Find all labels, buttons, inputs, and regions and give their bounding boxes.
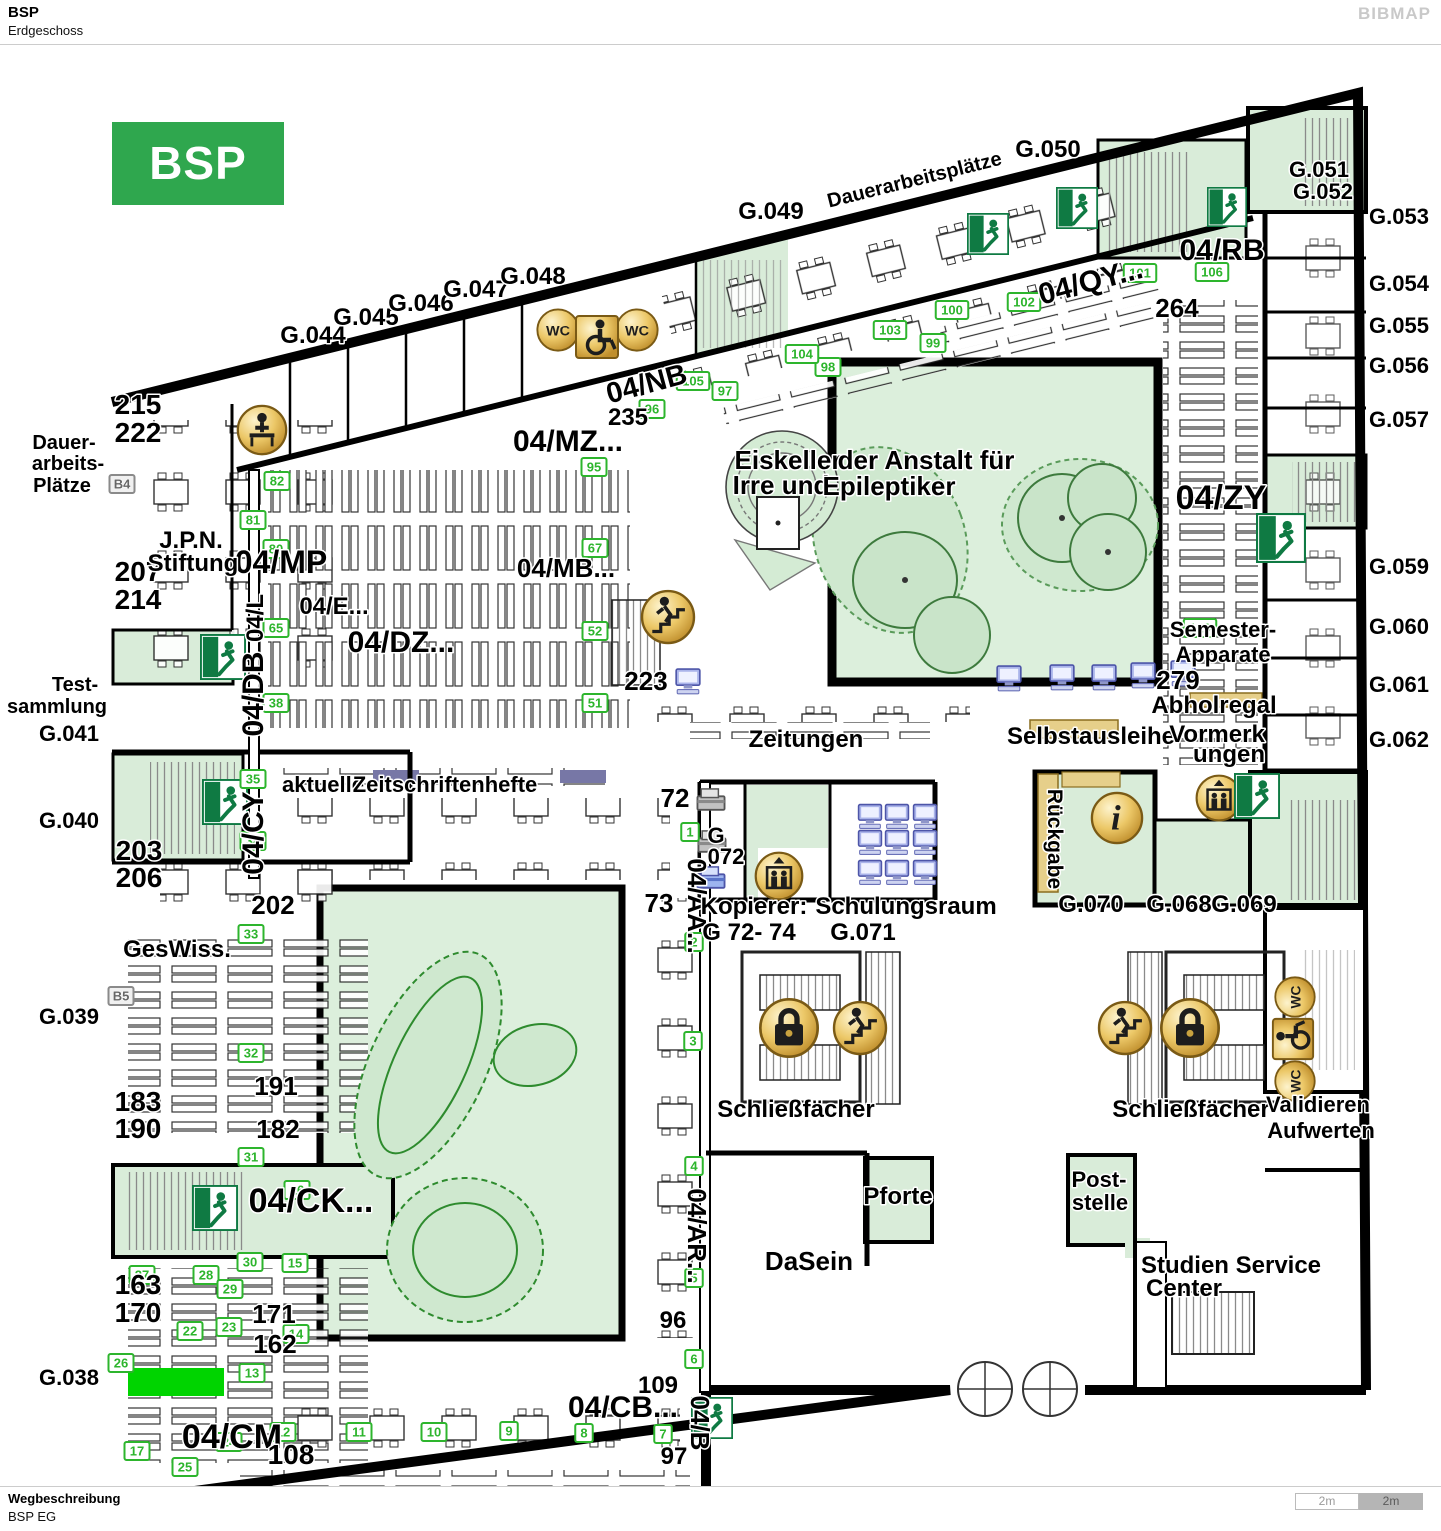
computer-icon — [886, 805, 909, 829]
map-label: Abholregal — [1151, 692, 1276, 719]
scale-segment-1: 2m — [1295, 1493, 1359, 1510]
svg-text:26: 26 — [114, 1356, 128, 1371]
map-label: 214 — [115, 584, 162, 615]
map-label: Apparate — [1175, 642, 1270, 667]
map-label: G.053 — [1369, 204, 1429, 229]
map-label: Zeitschriftenhefte — [353, 772, 538, 797]
map-label: G.050 — [1015, 136, 1080, 163]
map-label: G.054 — [1369, 271, 1430, 296]
exit-icon — [1208, 188, 1246, 226]
svg-text:51: 51 — [588, 696, 602, 711]
map-label: ungen — [1193, 741, 1265, 768]
section-marker: B5 — [109, 987, 134, 1005]
svg-text:9: 9 — [505, 1424, 512, 1439]
shelf-marker[interactable]: 51 — [583, 694, 608, 712]
computer-icon — [1092, 665, 1116, 690]
lock-icon — [760, 999, 817, 1056]
shelf-marker[interactable]: 28 — [194, 1266, 219, 1284]
svg-text:1: 1 — [686, 825, 693, 840]
map-label: aktuelle — [282, 772, 364, 797]
map-label: Dauer- — [32, 432, 95, 454]
map-label: Validieren — [1266, 1092, 1370, 1117]
map-label: 72 — [661, 783, 690, 813]
map-label: G.056 — [1369, 353, 1429, 378]
svg-text:102: 102 — [1013, 295, 1035, 310]
map-label: Schulungsraum — [815, 893, 996, 920]
computer-icon — [859, 805, 882, 829]
map-label: 222 — [115, 417, 162, 448]
map-label: 04/E... — [299, 593, 368, 620]
map-label: G.040 — [39, 808, 99, 833]
map-label: 279 — [1156, 665, 1199, 695]
map-label: 264 — [1155, 293, 1199, 323]
map-label: Post- — [1072, 1167, 1127, 1192]
svg-text:33: 33 — [244, 927, 258, 942]
computer-icon — [1131, 663, 1155, 688]
shelf-marker[interactable]: 26 — [109, 1354, 134, 1372]
svg-text:35: 35 — [246, 772, 260, 787]
map-label: G.038 — [39, 1365, 99, 1390]
computer-icon — [886, 861, 909, 885]
svg-text:29: 29 — [223, 1282, 237, 1297]
shelf-marker[interactable]: 32 — [239, 1044, 264, 1062]
map-label: 190 — [115, 1113, 162, 1144]
map-label: 04/L — [242, 594, 269, 642]
bibmap-logo: BIBMAP — [1358, 4, 1431, 24]
svg-text:8: 8 — [580, 1426, 587, 1441]
shelf-marker[interactable]: 22 — [178, 1322, 203, 1340]
stairs-icon — [1099, 1002, 1151, 1054]
map-label: G.069 — [1211, 891, 1276, 918]
map-label: G.061 — [1369, 672, 1429, 697]
map-label: 108 — [268, 1439, 315, 1470]
map-label: 04/MZ... — [513, 425, 623, 458]
footer: Wegbeschreibung BSP EG 2m2m — [0, 1486, 1441, 1531]
computer-icon — [859, 861, 882, 885]
svg-text:103: 103 — [879, 323, 901, 338]
map-label: stelle — [1072, 1190, 1128, 1215]
svg-text:52: 52 — [588, 624, 602, 639]
highlighted-shelf[interactable] — [128, 1368, 224, 1396]
directions-label: Wegbeschreibung — [8, 1491, 120, 1506]
shelf-marker[interactable]: 82 — [265, 472, 290, 490]
map-label: Plätze — [33, 475, 91, 497]
shelf-marker[interactable]: 11 — [347, 1423, 372, 1441]
map-label: 171 — [252, 1299, 295, 1329]
svg-text:100: 100 — [941, 303, 963, 318]
map-label: Stiftung — [148, 550, 239, 577]
shelf-marker[interactable]: 8 — [575, 1424, 593, 1442]
computer-icon — [914, 831, 937, 855]
svg-text:81: 81 — [246, 513, 260, 528]
map-label: 04/AR... — [682, 1188, 712, 1283]
map-label: G.041 — [39, 721, 99, 746]
map-label: sammlung — [7, 696, 107, 718]
page-title: BSP — [8, 4, 39, 21]
map-label: G.049 — [738, 198, 803, 225]
shelf-marker[interactable]: 1 — [681, 823, 699, 841]
svg-text:10: 10 — [427, 1425, 441, 1440]
shelf-marker[interactable]: 103 — [874, 321, 907, 339]
map-label: Semester- — [1170, 617, 1276, 642]
exit-icon — [1057, 188, 1097, 228]
shelf-marker[interactable]: 52 — [583, 622, 608, 640]
svg-text:97: 97 — [718, 384, 732, 399]
shelf-marker[interactable]: 33 — [239, 925, 264, 943]
svg-text:13: 13 — [245, 1366, 259, 1381]
scale-segment-2: 2m — [1359, 1493, 1423, 1510]
map-label: G.055 — [1369, 313, 1429, 338]
shelf-marker[interactable]: 13 — [240, 1364, 265, 1382]
map-label: G.060 — [1369, 614, 1429, 639]
svg-text:6: 6 — [690, 1352, 697, 1367]
computer-icon — [676, 669, 700, 694]
wc-icon — [1275, 977, 1314, 1016]
map-label: 170 — [115, 1297, 162, 1328]
map-label: 072 — [708, 844, 745, 869]
map-label: 04/CY — [237, 791, 270, 874]
shelf-marker[interactable]: 25 — [173, 1458, 198, 1476]
svg-text:7: 7 — [659, 1427, 666, 1442]
svg-text:31: 31 — [244, 1150, 258, 1165]
shelf-marker[interactable]: 3 — [684, 1032, 702, 1050]
map-label: 191 — [254, 1071, 297, 1101]
map-label: Selbstausleihe — [1007, 723, 1175, 750]
exit-icon — [968, 214, 1008, 254]
svg-text:82: 82 — [270, 474, 284, 489]
map-label: 163 — [115, 1269, 162, 1300]
map-label: 73 — [645, 888, 674, 918]
shelf-marker[interactable]: 23 — [217, 1318, 242, 1336]
shelf-marker[interactable]: 35 — [241, 770, 266, 788]
computer-icon — [997, 666, 1021, 691]
exit-icon — [1257, 514, 1305, 562]
map-label: G.071 — [830, 919, 895, 946]
floor-title-box: BSP EG — [112, 122, 284, 205]
map-label: 215 — [115, 389, 162, 420]
svg-text:104: 104 — [791, 347, 813, 362]
map-label: Center — [1146, 1275, 1222, 1302]
computer-icon — [1050, 665, 1074, 690]
map-label: Epileptiker — [823, 471, 956, 501]
section-marker: B4 — [110, 475, 135, 493]
map-label: G.047 — [443, 276, 508, 303]
shelf-marker[interactable]: 4 — [685, 1157, 703, 1175]
shelf-marker[interactable]: 7 — [654, 1425, 672, 1443]
svg-text:23: 23 — [222, 1320, 236, 1335]
scale-bar: 2m2m — [1295, 1493, 1423, 1511]
shelf-marker[interactable]: 31 — [239, 1148, 264, 1166]
header: BSP Erdgeschoss BIBMAP — [0, 0, 1441, 45]
map-label: arbeits- — [32, 453, 104, 475]
map-label: Aufwerten — [1267, 1118, 1375, 1143]
map-label: G.059 — [1369, 554, 1429, 579]
exit-icon — [193, 1186, 237, 1230]
accessible-icon — [576, 316, 618, 358]
map-label: Rückgabe — [1043, 789, 1066, 889]
computer-icon — [914, 861, 937, 885]
svg-text:99: 99 — [926, 336, 940, 351]
map-label: 182 — [256, 1114, 299, 1144]
info-icon — [1092, 793, 1142, 843]
map-label: G.039 — [39, 1004, 99, 1029]
map-label: G.062 — [1369, 727, 1429, 752]
page-subtitle: Erdgeschoss — [8, 23, 83, 38]
map-label: Pforte — [863, 1183, 932, 1210]
map-label: 04/B — [685, 1396, 715, 1451]
svg-text:11: 11 — [352, 1425, 366, 1440]
shelf-marker[interactable]: 102 — [1008, 293, 1041, 311]
stairs-icon — [834, 1002, 886, 1054]
exit-icon — [1235, 774, 1279, 818]
shelf-marker[interactable]: 17 — [125, 1442, 150, 1460]
map-label: 04/CK... — [249, 1182, 374, 1220]
computer-icon — [914, 805, 937, 829]
computer-icon — [886, 831, 909, 855]
stairs-icon — [642, 591, 694, 643]
wc-icon — [616, 309, 657, 350]
map-label: Test- — [52, 674, 98, 696]
shelf-marker[interactable]: 97 — [713, 382, 738, 400]
svg-text:25: 25 — [178, 1460, 192, 1475]
copier-icon — [697, 789, 724, 810]
directions-value: BSP EG — [8, 1509, 56, 1524]
map-label: GesWiss. — [123, 936, 231, 963]
shelf-marker[interactable]: 29 — [218, 1280, 243, 1298]
map-label: Kopierer: — [701, 893, 808, 920]
map-label: DaSein — [765, 1246, 853, 1276]
map-label: G.068 — [1146, 891, 1211, 918]
svg-text:B4: B4 — [114, 477, 131, 492]
map-label: Schließfächer — [717, 1096, 874, 1123]
svg-text:95: 95 — [587, 460, 601, 475]
svg-text:4: 4 — [690, 1159, 698, 1174]
map-label: Irre und — [733, 470, 830, 500]
map-label: 04/DB — [237, 651, 270, 736]
shelf-marker[interactable]: 30 — [238, 1253, 263, 1271]
map-label: 162 — [253, 1329, 296, 1359]
map-label: G.048 — [500, 263, 565, 290]
svg-text:B5: B5 — [113, 989, 130, 1004]
shelf-marker[interactable]: 99 — [921, 334, 946, 352]
map-label: 202 — [251, 890, 294, 920]
map-label: G.070 — [1058, 891, 1123, 918]
wc-icon — [537, 309, 578, 350]
map-label: G.052 — [1293, 179, 1353, 204]
shelf-marker[interactable]: 6 — [685, 1350, 703, 1368]
map-label: 223 — [624, 666, 667, 696]
bibmap-screen: WC — [0, 0, 1441, 1531]
svg-text:15: 15 — [288, 1256, 302, 1271]
map-label: 04/MP — [235, 544, 327, 580]
shelf-marker[interactable]: 10 — [422, 1423, 447, 1441]
map-label: 97 — [661, 1443, 688, 1470]
shelf-marker[interactable]: 81 — [241, 511, 266, 529]
svg-text:3: 3 — [689, 1034, 696, 1049]
svg-text:30: 30 — [243, 1255, 257, 1270]
svg-text:22: 22 — [183, 1324, 197, 1339]
svg-text:28: 28 — [199, 1268, 213, 1283]
svg-text:65: 65 — [269, 621, 283, 636]
map-label: 206 — [116, 862, 163, 893]
map-label: G.057 — [1369, 407, 1429, 432]
svg-text:38: 38 — [269, 696, 283, 711]
shelf-marker[interactable]: 95 — [582, 458, 607, 476]
map-label: G 72- 74 — [702, 919, 796, 946]
shelf-marker[interactable]: 104 — [786, 345, 819, 363]
map-label: 04/ZY — [1176, 479, 1267, 517]
shelf-marker[interactable]: 15 — [283, 1254, 308, 1272]
computer-icon — [859, 831, 882, 855]
map-label: Schließfächer — [1112, 1096, 1269, 1123]
svg-text:32: 32 — [244, 1046, 258, 1061]
lock-icon — [1161, 999, 1218, 1056]
shelf-marker[interactable]: 9 — [500, 1422, 518, 1440]
map-label: Zeitungen — [749, 726, 864, 753]
map-label: 04/MB... — [517, 553, 615, 583]
accessible-icon — [1273, 1019, 1313, 1059]
svg-text:17: 17 — [130, 1444, 144, 1459]
map-label: 04/RB — [1179, 234, 1264, 267]
persondesk-icon — [238, 406, 286, 454]
shelf-marker[interactable]: 100 — [936, 301, 969, 319]
map-label: 04/DZ... — [348, 626, 455, 659]
svg-text:98: 98 — [821, 360, 835, 375]
map-label: 109 — [638, 1372, 678, 1399]
map-label: 96 — [660, 1307, 687, 1334]
